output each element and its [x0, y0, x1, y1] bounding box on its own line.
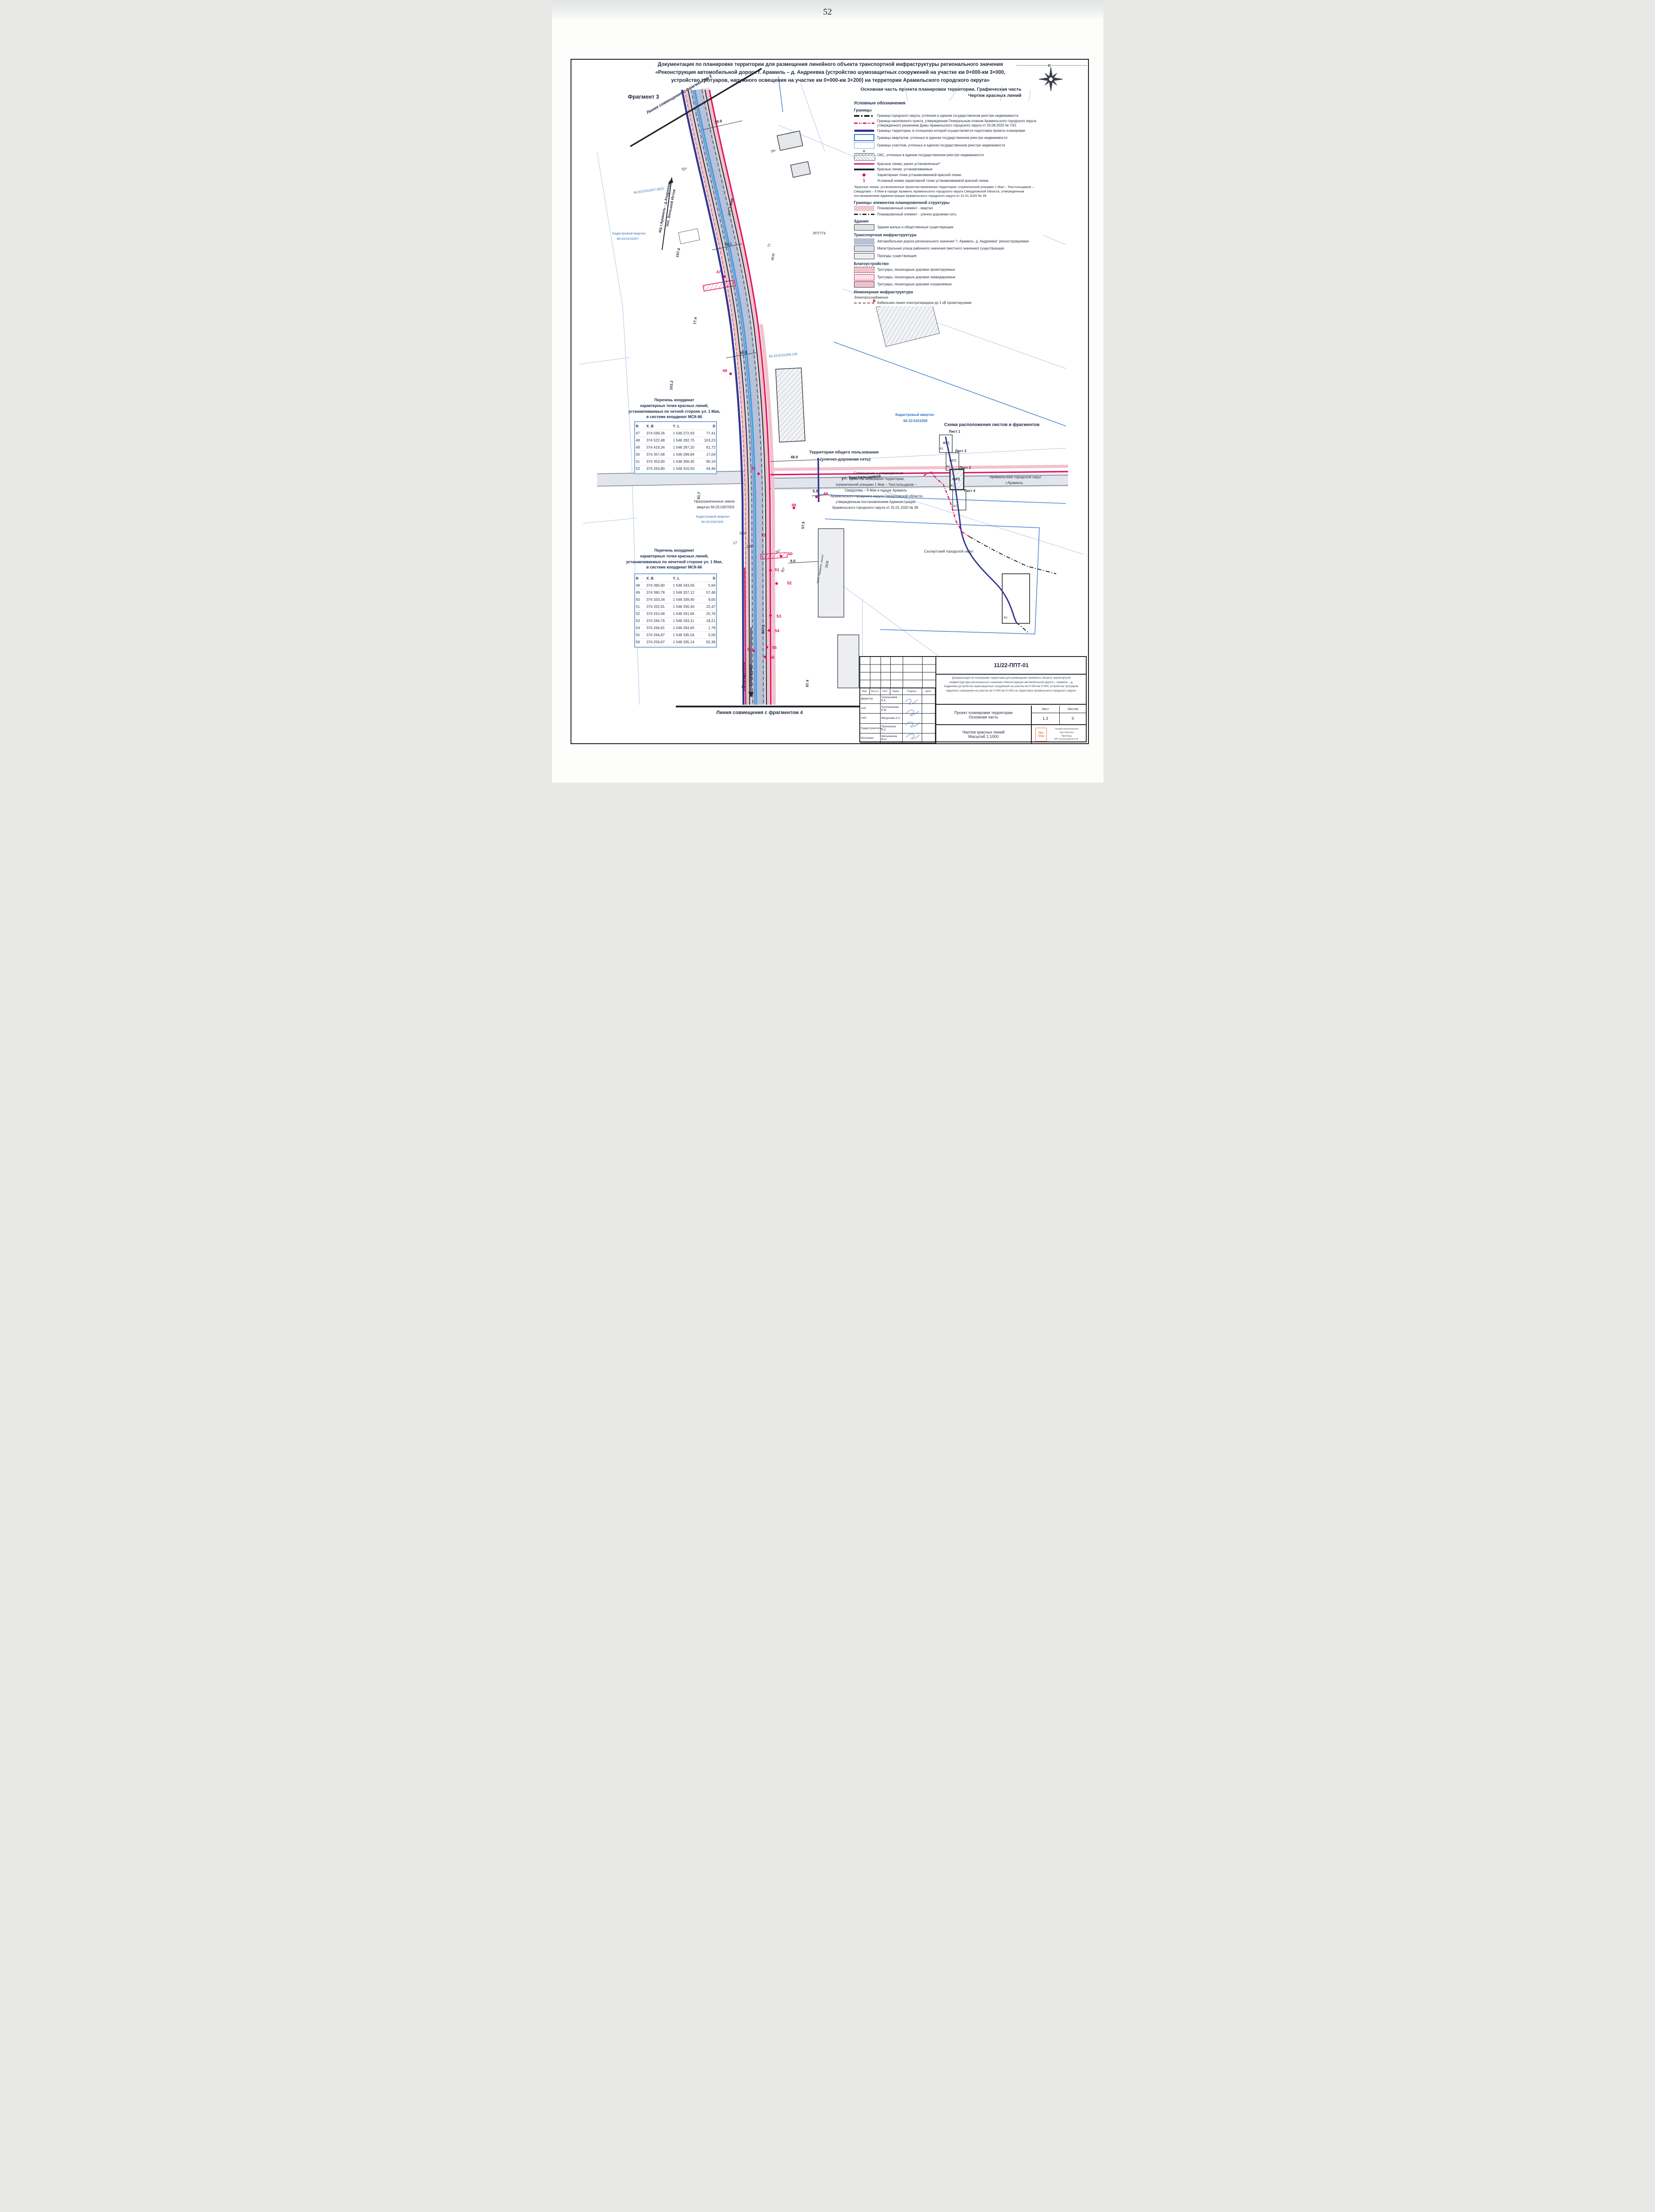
- table-cell: 47: [636, 430, 647, 437]
- table-cell: 90,19: [702, 458, 716, 465]
- table-title-line: в системе координат МСК-66: [621, 414, 728, 420]
- legend-item: Проезды существующие: [854, 253, 1043, 259]
- cable-arrow-icon: [873, 299, 876, 303]
- table-row: 50374 333,341 548 339,409,00: [635, 596, 716, 603]
- signature-role: Исполнил: [860, 733, 881, 743]
- table-row: 47374 599,261 548 272,9377,41: [635, 430, 716, 437]
- swatch-bar: [854, 224, 874, 230]
- swatch-bar: [854, 274, 874, 280]
- table-cell: 9,00: [702, 596, 716, 603]
- table-cell: 57,48: [702, 589, 716, 596]
- table-cell: 51: [636, 603, 647, 611]
- legend-subheading: Электроснабжение: [854, 295, 1043, 300]
- legend-item: Красные линии, устанавливаемые: [854, 167, 1043, 172]
- table-cell: 92,38: [702, 639, 716, 646]
- table-cell: 1 548 272,93: [673, 430, 702, 437]
- signature-col-header: Лист: [881, 688, 890, 695]
- table-row: 51374 353,901 548 306,4590,19: [635, 458, 716, 465]
- table-cell: 1 548 343,06: [673, 582, 702, 589]
- legend-item: Характерная точка устанавливаемой красно…: [854, 173, 1043, 177]
- legend-item: Планировочный элемент - квартал: [854, 206, 1043, 211]
- legend-item-label: Магистральная улица районного значения (…: [877, 246, 1004, 251]
- table-row: 52374 310,481 548 331,6625,76: [635, 611, 716, 618]
- swatch-bar: [854, 169, 874, 170]
- terr-swatch-icon: [854, 129, 874, 133]
- swatch-bar: [854, 214, 874, 215]
- table-cell: 1,79: [702, 625, 716, 632]
- table-title-line: устанавливаемых по четной стороне ул. 1 …: [621, 409, 728, 415]
- region-aramil-label: Арамильский городской округ: [990, 475, 1042, 479]
- table-row: 55374 264,871 548 335,045,00: [635, 632, 716, 639]
- drawing-line2: Масштаб 1:1000: [968, 734, 999, 739]
- legend-item-label: Красные линии, ранее установленные*: [877, 162, 940, 166]
- pr-swatch-icon: [854, 253, 874, 259]
- firm-line3: ИП Гусельников К.А.: [1049, 738, 1085, 741]
- legend-heading: Благоустройство: [854, 261, 1043, 266]
- table-cell: 374 333,34: [647, 596, 673, 603]
- signature-name: Гусельникова Е.М.: [881, 704, 903, 713]
- legend-item-label: Условный номер характерной точки устанав…: [877, 179, 988, 183]
- swatch-bar: [854, 134, 874, 141]
- fragment2-label: ФР2: [950, 459, 957, 463]
- tr-pr-swatch-icon: [854, 267, 874, 273]
- legend-item: Здания жилые и общественные существующие: [854, 224, 1043, 230]
- page-number: 52: [552, 7, 1103, 17]
- swatch-bar: [854, 163, 874, 165]
- table-row: 50374 357,681 548 289,8417,04: [635, 451, 716, 458]
- table-row: 53374 284,761 548 333,1118,21: [635, 618, 716, 625]
- legend-item-label: Границы территории, в отношении которой …: [877, 129, 1025, 133]
- table-cell: 49: [636, 444, 647, 451]
- sheet4-label: Лист 4: [964, 489, 976, 493]
- drawing-line1: Чертеж красных линий: [962, 730, 1004, 734]
- sheet1-format: А1: [940, 447, 944, 450]
- table-cell: 1 548 333,11: [673, 618, 702, 625]
- table-cell: 17,04: [702, 451, 716, 458]
- sheets-label: Листов: [1059, 706, 1087, 713]
- table-cell: 1 548 337,12: [673, 589, 702, 596]
- signature-row: ДиректорГусельников К.А.: [860, 694, 935, 704]
- signature-date-cell: [922, 714, 935, 723]
- table-cell: 50: [636, 451, 647, 458]
- logo-line2: Град: [1038, 735, 1044, 738]
- swatch-bar: [854, 115, 874, 117]
- legend-item-label: Планировочный элемент - улично-дорожная …: [877, 212, 957, 217]
- table-cell: 77,41: [702, 430, 716, 437]
- item: [854, 153, 874, 154]
- signature-role: ГАП: [860, 704, 881, 713]
- legend-item: Граница городского округа, учтенная в ед…: [854, 114, 1043, 118]
- swatch-bar: [854, 253, 874, 259]
- legend-item-label: Тротуары, пешеходные дорожки ликвидируем…: [877, 275, 956, 280]
- firm-text: Градостроительная мастерская ПроГрад ИП …: [1049, 728, 1085, 741]
- legend-footnote: *Красные линии, установленные проектом м…: [854, 185, 1043, 198]
- signature-col-header: №док.: [890, 688, 903, 695]
- legend-item-label: Здания жилые и общественные существующие: [877, 225, 954, 230]
- table-row: 48374 522,481 548 282,75103,23: [635, 437, 716, 444]
- table-cell: 374 390,78: [647, 589, 673, 596]
- legend-item-label: Тротуары, пешеходные дорожки проектируем…: [877, 268, 955, 272]
- tr-sv-swatch-icon: [854, 281, 874, 288]
- swatch-bar: [854, 142, 874, 149]
- legend-item-label: ОКС, учтенные в едином государственном р…: [877, 153, 984, 157]
- pe-uds-swatch-icon: [854, 212, 874, 217]
- prograd-logo: Про Град: [1035, 728, 1047, 741]
- table-title-line: в системе координат МСК-66: [621, 565, 728, 570]
- table-header-row: NX_BY_LD: [635, 423, 716, 430]
- legend-item: Тротуары, пешеходные дорожки сохраняемые: [854, 281, 1043, 288]
- signature-scribbles: [903, 694, 922, 743]
- go-swatch-icon: [854, 114, 874, 118]
- legend-item: Границы участков, учтенных в едином госу…: [854, 142, 1043, 149]
- table-cell: 1 548 334,65: [673, 625, 702, 632]
- firm-line2: ПроГрад: [1049, 735, 1085, 738]
- table-cell: 374 357,68: [647, 451, 673, 458]
- firm-line1: Градостроительная мастерская: [1049, 728, 1085, 735]
- legend-item: Границы территории, в отношении которой …: [854, 129, 1043, 133]
- legend-heading: Транспортная инфраструктура: [854, 233, 1043, 237]
- bld-swatch-icon: [854, 224, 874, 230]
- legend-item: ОКС, учтенные в едином государственном р…: [854, 150, 1043, 161]
- signature-rows: ДиректорГусельников К.А.ГАПГусельникова …: [860, 694, 935, 743]
- project-line1: Проект планировки территории: [954, 710, 1013, 715]
- table-cell: 5,00: [702, 632, 716, 639]
- document-page: 52: [552, 0, 1103, 783]
- signature-date-cell: [922, 733, 935, 743]
- table-cell: 52: [636, 611, 647, 618]
- table-cell: 374 332,91: [647, 603, 673, 611]
- table-row: 54374 266,611 548 334,651,79: [635, 625, 716, 632]
- table-header-cell: D: [702, 423, 716, 430]
- document-number: 11/22-ППТ-01: [936, 657, 1087, 675]
- fragment1-label: ФР1: [943, 441, 950, 445]
- table-cell: 18,21: [702, 618, 716, 625]
- table-header-cell: D: [702, 575, 716, 582]
- swatch-bar: [854, 123, 874, 124]
- table-cell: 22,47: [702, 603, 716, 611]
- table-cell: 374 353,90: [647, 458, 673, 465]
- table-header-cell: X_B: [647, 575, 673, 582]
- table-cell: 56: [636, 639, 647, 646]
- table-cell: 52: [636, 465, 647, 472]
- signature-col-header: Дата: [922, 688, 935, 695]
- fragment3-label: ФР3: [953, 477, 960, 481]
- np-swatch-icon: [854, 121, 874, 126]
- firm-stamp-cell: Про Град Градостроительная мастерская Пр…: [1032, 725, 1087, 743]
- legend-item: Красные линии, ранее установленные*: [854, 161, 1043, 166]
- table-cell: 374 419,34: [647, 444, 673, 451]
- title-block: Изм.Кол.учЛист№док.ПодписьДата ДиректорГ…: [859, 656, 1087, 742]
- table-row: 48374 390,801 548 343,065,94: [635, 582, 716, 589]
- sheet3-format: А1: [950, 484, 954, 488]
- table-cell: 49: [636, 589, 647, 596]
- legend-item: 1Условный номер характерной точки устана…: [854, 178, 1043, 183]
- table-cell: 1 548 331,66: [673, 611, 702, 618]
- legend-items: ГраницыГраница городского округа, учтенн…: [854, 108, 1043, 305]
- sheet4-format: А1: [954, 505, 958, 508]
- num-swatch-icon: 1: [854, 178, 874, 183]
- table-cell: 374 522,48: [647, 437, 673, 444]
- table-header-cell: Y_L: [673, 575, 702, 582]
- legend-panel: Условные обозначения ГраницыГраница горо…: [854, 101, 1043, 306]
- legend-item: Магистральная улица районного значения (…: [854, 246, 1043, 252]
- table-header-row: NX_BY_LD: [635, 575, 716, 582]
- table-cell: 374 263,80: [647, 465, 673, 472]
- sheets-value: 9: [1059, 713, 1087, 724]
- table-cell: 53: [636, 618, 647, 625]
- pt-swatch-icon: [854, 173, 874, 177]
- signature-role: ГИП: [860, 714, 881, 723]
- table-cell: 1 548 330,40: [673, 603, 702, 611]
- table-title-line: характерных точек красных линий,: [621, 403, 728, 409]
- legend-item-label: Границы участков, учтенных в едином госу…: [877, 143, 1005, 148]
- table-title-line: Перечень координат: [621, 397, 728, 403]
- region-sysert-label: Сысертский городской округ: [924, 549, 974, 553]
- table-cell: 1 548 335,04: [673, 632, 702, 639]
- sheet2-format: А1: [946, 465, 950, 468]
- signature-name: Мельникова М.Н.: [881, 733, 903, 743]
- legend-item-label: Проезды существующие: [877, 254, 917, 258]
- table-title-line: устанавливаемых по нечетной стороне ул. …: [621, 559, 728, 565]
- table-cell: 51: [636, 458, 647, 465]
- table-header-cell: N: [636, 575, 647, 582]
- swatch-bar: [854, 206, 874, 211]
- project-line2: Основная часть: [969, 715, 998, 719]
- table-header-cell: X_B: [647, 423, 673, 430]
- sheet-value: 1.3: [1032, 713, 1060, 724]
- table-cell: 1 548 282,75: [673, 437, 702, 444]
- sheet-label: Лист: [1032, 706, 1060, 713]
- table-cell: 64,46: [702, 465, 716, 472]
- logo-line1: Про: [1038, 732, 1044, 735]
- signature-row: ГрадостроительПрокошина В.С.: [860, 724, 935, 733]
- legend-item-label: Тротуары, пешеходные дорожки сохраняемые: [877, 282, 952, 287]
- oks-swatch: [854, 150, 874, 161]
- rl-old-swatch-icon: [854, 161, 874, 166]
- table-cell: 374 310,48: [647, 611, 673, 618]
- swatch-bar: [854, 281, 874, 288]
- table-cell: 61,72: [702, 444, 716, 451]
- signature-date-cell: [922, 724, 935, 733]
- uch-swatch-icon: [854, 142, 874, 149]
- legend-item: Граница населенного пункта, утвержденная…: [854, 119, 1043, 127]
- signature-row: ГАПГусельникова Е.М.: [860, 704, 935, 714]
- table-header-cell: N: [636, 423, 647, 430]
- sheet2-label: Лист 2: [955, 449, 967, 453]
- legend-heading: Границы: [854, 108, 1043, 112]
- legend-heading: Границы элементов планировочной структур…: [854, 200, 1043, 205]
- project-name-cell: Проект планировки территории Основная ча…: [936, 706, 1032, 725]
- legend-item: Тротуары, пешеходные дорожки проектируем…: [854, 267, 1043, 273]
- signature-row: ГИПМинушова А.С.: [860, 714, 935, 723]
- legend-heading: Инженерная инфраструктура: [854, 290, 1043, 294]
- legend-item-label: Автомобильная дорога регионального значе…: [877, 239, 1029, 244]
- legend-item-label: Кабельная линия электропередачи до 1 кВ …: [877, 301, 972, 305]
- legend-item: Кабельная линия электропередачи до 1 кВ …: [854, 301, 1043, 305]
- sheet1-label: Лист 1: [949, 430, 961, 434]
- table-cell: 1 548 306,45: [673, 458, 702, 465]
- street-vostochnaya-band: [597, 477, 747, 480]
- sheet-schema-canvas: [923, 422, 1061, 635]
- legend-item-label: Границы кварталов, учтенных в едином гос…: [877, 136, 1008, 140]
- table-cell: 374 599,26: [647, 430, 673, 437]
- table-row: 49374 390,781 548 337,1257,48: [635, 589, 716, 596]
- table-cell: 25,76: [702, 611, 716, 618]
- sheet-count-grid: Лист Листов 1.3 9: [1032, 706, 1087, 725]
- signature-name: Прокошина В.С.: [881, 724, 903, 733]
- sheet-schema-panel: Схема расположения листов и фрагментов Л…: [923, 422, 1061, 635]
- item: [854, 155, 875, 161]
- kv-swatch-icon: [854, 134, 874, 141]
- signature-name: Гусельников К.А.: [881, 694, 903, 703]
- table-cell: 55: [636, 632, 647, 639]
- signature-role: Директор: [860, 694, 881, 703]
- signature-col-header: Кол.уч: [870, 688, 881, 695]
- swatch-bar: [854, 246, 874, 252]
- signature-col-header: Подпись: [903, 688, 922, 695]
- table-cell: 48: [636, 437, 647, 444]
- table-cell: 1 548 310,50: [673, 465, 702, 472]
- compass-rose-icon: [1039, 67, 1063, 91]
- table-row: 51374 332,911 548 330,4022,47: [635, 603, 716, 611]
- table-title-line: характерных точек красных линий,: [621, 553, 728, 559]
- mag-swatch-icon: [854, 246, 874, 252]
- table-cell: 1 548 287,20: [673, 444, 702, 451]
- table-cell: 1 548 335,14: [673, 639, 702, 646]
- titleblock-description: Документация по планировке территории дл…: [936, 675, 1087, 705]
- swatch-bar: [854, 238, 874, 245]
- swatch-bar: [854, 303, 874, 303]
- road-direction-arrowhead: [668, 177, 673, 184]
- drawing-name-cell: Чертеж красных линий Масштаб 1:1000: [936, 725, 1032, 743]
- cab-swatch-icon: [854, 301, 874, 305]
- coord-table2-title: Перечень координатхарактерных точек крас…: [621, 548, 728, 570]
- swatch-bar: [854, 130, 874, 132]
- coord-table1: NX_BY_LD47374 599,261 548 272,9377,41483…: [634, 421, 717, 474]
- table-row: 52374 263,801 548 310,5064,46: [635, 465, 716, 472]
- signature-date-cell: [922, 694, 935, 703]
- road-direction-arrow: [662, 177, 672, 250]
- revision-rows: [860, 657, 935, 688]
- table-cell: 54: [636, 625, 647, 632]
- table-title-line: Перечень координат: [621, 548, 728, 553]
- sheet5-format: А1: [1004, 616, 1008, 619]
- legend-title: Условные обозначения: [854, 101, 1043, 106]
- table-cell: 1 548 289,84: [673, 451, 702, 458]
- legend-item: Границы кварталов, учтенных в едином гос…: [854, 134, 1043, 141]
- sheet3-label: Лист 3: [960, 466, 971, 470]
- road-swatch-icon: [854, 238, 874, 245]
- table-cell: 374 264,87: [647, 632, 673, 639]
- table-cell: 374 266,61: [647, 625, 673, 632]
- table-cell: 1 548 339,40: [673, 596, 702, 603]
- table-cell: 50: [636, 596, 647, 603]
- tr-lq-swatch-icon: [854, 274, 874, 280]
- table-header-cell: Y_L: [673, 423, 702, 430]
- signature-col-header: Изм.: [860, 688, 870, 695]
- table-cell: 374 259,87: [647, 639, 673, 646]
- signature-date-cell: [922, 704, 935, 713]
- coord-table1-title: Перечень координатхарактерных точек крас…: [621, 397, 728, 420]
- coord-table2: NX_BY_LD48374 390,801 548 343,065,944937…: [634, 573, 717, 648]
- table-cell: 374 284,76: [647, 618, 673, 625]
- table-cell: 48: [636, 582, 647, 589]
- legend-item-label: Красные линии, устанавливаемые: [877, 167, 933, 172]
- oks-swatch-icon: [854, 150, 874, 161]
- signature-name: Минушова А.С.: [881, 714, 903, 723]
- signature-role: Градостроитель: [860, 724, 881, 733]
- legend-heading: Здания: [854, 219, 1043, 223]
- swatch-bar: [862, 173, 866, 177]
- signature-row: ИсполнилМельникова М.Н.: [860, 733, 935, 743]
- legend-item: Автомобильная дорога регионального значе…: [854, 238, 1043, 245]
- legend-item: Планировочный элемент - улично-дорожная …: [854, 212, 1043, 217]
- swatch-bar: [854, 267, 874, 273]
- legend-item: Тротуары, пешеходные дорожки ликвидируем…: [854, 274, 1043, 280]
- table-row: 49374 419,341 548 287,2061,72: [635, 444, 716, 451]
- region-aramil-city-label: г.Арамиль: [1006, 480, 1023, 485]
- pe-kv-swatch-icon: [854, 206, 874, 211]
- legend-item-label: Характерная точка устанавливаемой красно…: [877, 173, 962, 177]
- table-cell: 374 390,80: [647, 582, 673, 589]
- legend-item-label: Граница населенного пункта, утвержденная…: [877, 119, 1043, 127]
- table-row: 56374 259,871 548 335,1492,38: [635, 639, 716, 646]
- legend-item-label: Граница городского округа, учтенная в ед…: [877, 114, 1019, 118]
- item: [863, 150, 865, 152]
- table-cell: 103,23: [702, 437, 716, 444]
- legend-item-label: Планировочный элемент - квартал: [877, 206, 933, 211]
- table-cell: 5,94: [702, 582, 716, 589]
- rl-new-swatch-icon: [854, 167, 874, 172]
